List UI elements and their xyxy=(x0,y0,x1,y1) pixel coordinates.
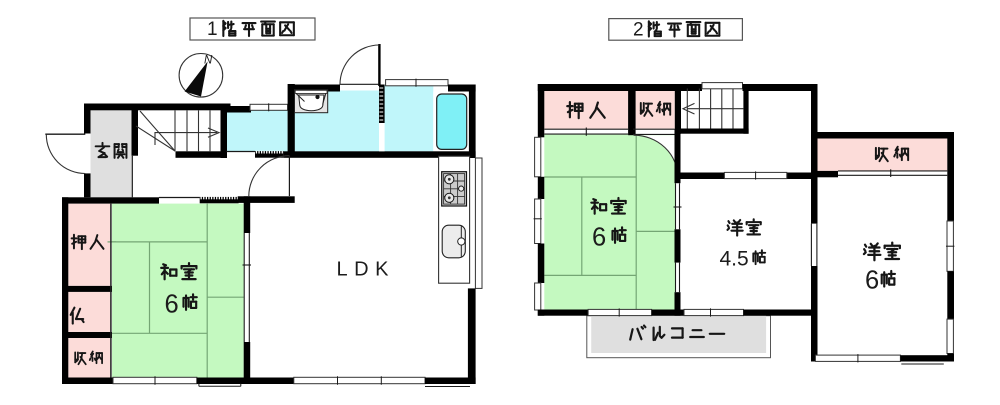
svg-text:1: 1 xyxy=(207,19,218,40)
svg-text:6: 6 xyxy=(165,290,179,318)
svg-text:LDK: LDK xyxy=(337,259,395,281)
svg-text:4.5: 4.5 xyxy=(720,248,749,271)
svg-text:2: 2 xyxy=(633,19,644,40)
svg-text:6: 6 xyxy=(865,267,879,295)
svg-text:N: N xyxy=(204,55,213,67)
svg-text:6: 6 xyxy=(592,223,606,251)
